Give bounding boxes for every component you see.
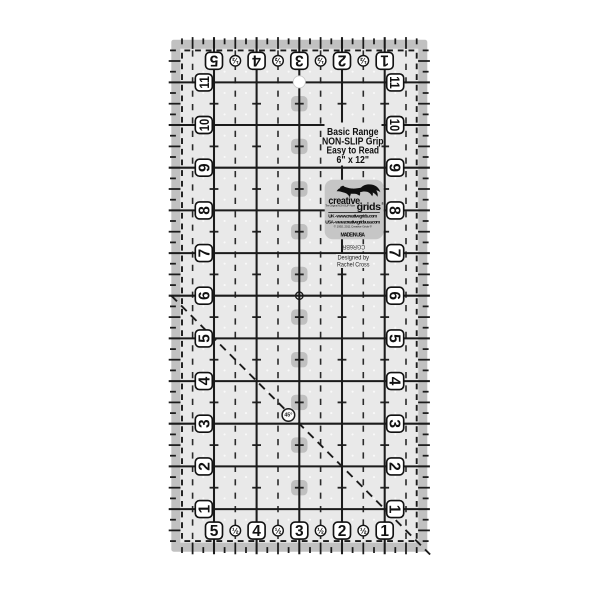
svg-text:3: 3 (386, 419, 403, 428)
svg-text:7: 7 (196, 249, 213, 258)
svg-text:8: 8 (386, 206, 403, 215)
svg-text:10: 10 (197, 119, 213, 131)
svg-text:5: 5 (196, 334, 213, 343)
svg-text:½: ½ (317, 527, 324, 536)
svg-text:®: ® (381, 202, 384, 206)
svg-text:1: 1 (380, 51, 389, 68)
svg-text:10: 10 (386, 119, 402, 131)
svg-text:8: 8 (196, 206, 213, 215)
svg-text:45°: 45° (284, 413, 292, 419)
svg-text:2: 2 (338, 523, 347, 540)
svg-text:MADE IN USA: MADE IN USA (341, 232, 366, 238)
svg-text:11: 11 (386, 76, 402, 88)
svg-text:2: 2 (386, 462, 403, 471)
svg-text:© 1992, 2011 Creative Grids ®: © 1992, 2011 Creative Grids ® (334, 225, 373, 229)
svg-text:½: ½ (360, 56, 367, 65)
svg-text:grids: grids (357, 202, 382, 213)
svg-text:6" x 12": 6" x 12" (337, 155, 370, 166)
svg-text:1: 1 (380, 523, 389, 540)
svg-text:½: ½ (274, 56, 281, 65)
svg-text:6: 6 (196, 291, 213, 300)
svg-text:2: 2 (196, 462, 213, 471)
svg-text:9: 9 (386, 163, 403, 172)
svg-text:½: ½ (360, 527, 367, 536)
svg-text:½: ½ (232, 527, 239, 536)
svg-text:Rachel Cross: Rachel Cross (337, 261, 370, 268)
svg-text:1: 1 (386, 505, 403, 514)
svg-text:6: 6 (386, 291, 403, 300)
svg-text:11: 11 (197, 76, 213, 88)
svg-text:1: 1 (196, 504, 213, 513)
svg-text:½: ½ (317, 56, 324, 65)
svg-text:½: ½ (275, 527, 282, 536)
svg-text:3: 3 (295, 51, 304, 68)
svg-text:9: 9 (196, 163, 213, 172)
svg-text:½: ½ (232, 56, 239, 65)
svg-text:3: 3 (196, 419, 213, 428)
svg-text:4: 4 (196, 376, 213, 385)
svg-text:4: 4 (252, 51, 261, 68)
svg-text:The Original NON-SLIP Ruler: The Original NON-SLIP Ruler (325, 203, 355, 207)
svg-text:2: 2 (338, 51, 347, 68)
svg-text:5: 5 (210, 523, 219, 540)
svg-text:4: 4 (252, 523, 261, 540)
svg-text:UK - www.creativegrids.com: UK - www.creativegrids.com (328, 214, 377, 220)
svg-text:7: 7 (386, 249, 403, 258)
svg-text:5: 5 (209, 51, 218, 68)
svg-text:3: 3 (295, 523, 304, 540)
svg-text:4: 4 (386, 377, 403, 386)
svg-text:5: 5 (386, 334, 403, 343)
svg-text:CGR6BR: CGR6BR (342, 243, 366, 249)
